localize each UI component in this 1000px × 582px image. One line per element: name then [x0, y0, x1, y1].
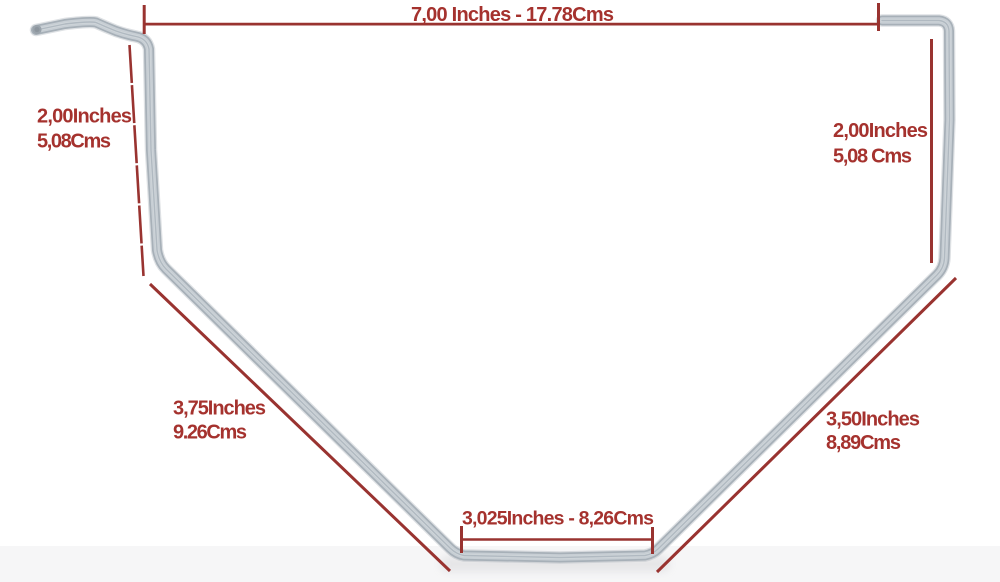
svg-text:8,89Cms: 8,89Cms: [826, 432, 901, 454]
svg-text:5,08 Cms: 5,08 Cms: [833, 146, 912, 168]
svg-text:3,75Inches: 3,75Inches: [173, 398, 266, 420]
svg-text:2,00Inches: 2,00Inches: [37, 106, 132, 128]
svg-text:5,08Cms: 5,08Cms: [37, 131, 111, 153]
svg-text:3,025Inches - 8,26Cms: 3,025Inches - 8,26Cms: [462, 508, 654, 530]
svg-text:7,00 Inches - 17.78Cms: 7,00 Inches - 17.78Cms: [411, 4, 614, 26]
svg-text:9.26Cms: 9.26Cms: [173, 422, 247, 444]
svg-text:2,00Inches: 2,00Inches: [833, 120, 928, 142]
svg-text:3,50Inches: 3,50Inches: [826, 409, 920, 431]
